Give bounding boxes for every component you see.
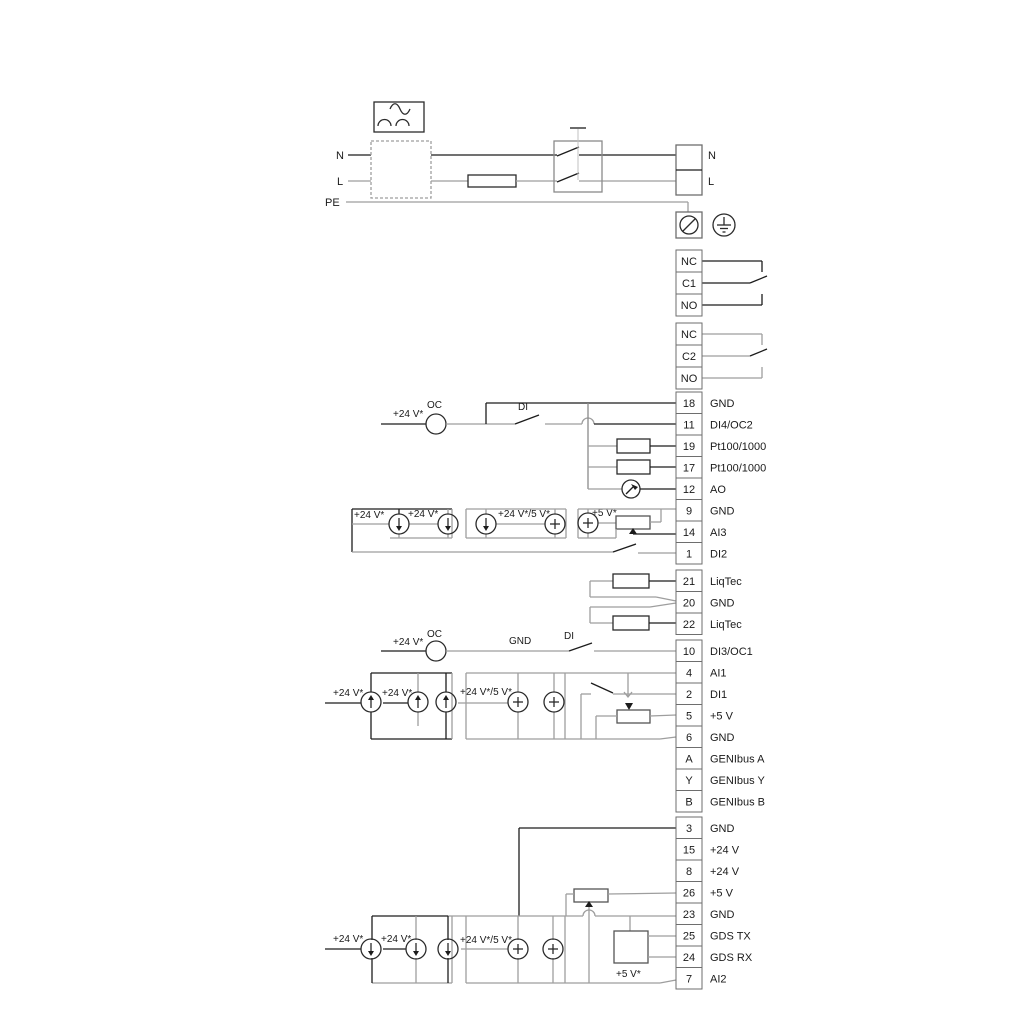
io-mid-terminal-block: 10DI3/OC14AI12DI15+5 V6GNDAGENIbus AYGEN…: [676, 640, 765, 812]
terminal-label: GND: [710, 597, 735, 609]
current-source-icon: [543, 939, 563, 959]
terminal-label: GDS RX: [710, 952, 753, 964]
terminal-number: 1: [686, 548, 692, 560]
oc-label: OC: [427, 629, 442, 640]
current-sink-icon: [361, 939, 381, 959]
plus5-label: +5 V*: [616, 969, 641, 980]
plus24-label: +24 V*: [333, 934, 363, 945]
label-l-right: L: [708, 176, 714, 188]
terminal-label: +5 V: [710, 710, 734, 722]
current-source-up-icon: [436, 692, 456, 712]
terminal-number: 7: [686, 973, 692, 985]
label-n-left: N: [336, 150, 344, 162]
power-section: N L PE N L: [325, 102, 735, 238]
fuse-symbol: [468, 175, 516, 187]
terminal-number: 25: [683, 930, 695, 942]
terminal-label: GND: [710, 398, 735, 410]
rectified-wave-icon: [378, 120, 409, 126]
mains-switch-blade-l: [557, 173, 579, 182]
label-n-right: N: [708, 150, 716, 162]
ai3-option-group: +24 V* +24 V* +24 V*/5 V* +5 V*: [352, 508, 676, 553]
terminal-number: 17: [683, 462, 695, 474]
earth-ground-icon: [713, 214, 735, 236]
current-sink-icon: [438, 939, 458, 959]
plus24or5-label: +24 V*/5 V*: [498, 509, 550, 520]
di4-oc2-circuit: +24 V* OC DI: [381, 400, 676, 434]
terminal-label: DI2: [710, 548, 727, 560]
terminal-label: +24 V: [710, 866, 740, 878]
label-l-left: L: [337, 176, 343, 188]
gnd-label: GND: [509, 636, 531, 647]
terminal-number: B: [685, 796, 692, 808]
relay-2-blade: [750, 349, 767, 356]
terminal-number: 4: [686, 667, 692, 679]
plus24-label: +24 V*: [393, 637, 423, 648]
analog-meter-icon: [622, 480, 640, 498]
terminal-number: C1: [682, 278, 696, 290]
terminal-label: GENIbus Y: [710, 775, 765, 787]
gds-sensor-box: [614, 931, 648, 963]
potentiometer-symbol: [574, 889, 608, 902]
di1-switch-blade: [591, 683, 613, 693]
potentiometer-symbol: [616, 516, 650, 529]
terminal-label: AI3: [710, 527, 727, 539]
terminal-number: 26: [683, 887, 695, 899]
terminal-label: GENIbus A: [710, 753, 765, 765]
terminal-label: +5 V: [710, 887, 734, 899]
terminal-number: 3: [686, 823, 692, 835]
terminal-number: 2: [686, 689, 692, 701]
terminal-number: 8: [686, 866, 692, 878]
wiring-diagram: N L PE N L +24 V* OC DI: [0, 0, 1024, 1024]
relay-1-terminal-block: NCC1NO: [676, 250, 702, 316]
plus24-label: +24 V*: [333, 688, 363, 699]
terminal-label: DI3/OC1: [710, 646, 753, 658]
label-pe: PE: [325, 197, 340, 209]
relay-1-contacts: [702, 261, 767, 305]
current-sink-icon: [476, 514, 496, 534]
terminal-number: 23: [683, 909, 695, 921]
current-sink-icon: [406, 939, 426, 959]
terminal-label: GND: [710, 505, 735, 517]
terminal-label: GND: [710, 823, 735, 835]
terminal-number: 21: [683, 576, 695, 588]
liqtec-circuit: [590, 574, 676, 630]
pt100-sensor-2: [617, 460, 650, 474]
mains-switch-blade-n: [557, 147, 579, 156]
di-label: DI: [564, 631, 574, 642]
terminal-label: LiqTec: [710, 619, 742, 631]
terminal-label: Pt100/1000: [710, 441, 766, 453]
terminal-label: AI1: [710, 667, 727, 679]
ai2-gds-group: +5 V* +24 V* +24 V* +24 V*/5 V*: [325, 828, 676, 983]
liqtec-terminal-block: 21LiqTec20GND22LiqTec: [676, 570, 742, 635]
terminal-number: 10: [683, 646, 695, 658]
terminal-label: GENIbus B: [710, 796, 765, 808]
terminal-number: C2: [682, 351, 696, 363]
liqtec-sensor-1: [613, 574, 649, 588]
terminal-number: NO: [681, 300, 698, 312]
ai1-option-group: +24 V* +24 V* +24 V*/5 V*: [325, 673, 676, 739]
terminal-number: 9: [686, 505, 692, 517]
pt100-sensor-1: [617, 439, 650, 453]
pt100-ao-circuit: [588, 403, 676, 498]
terminal-number: 15: [683, 844, 695, 856]
current-source-icon: [544, 692, 564, 712]
terminal-label: DI1: [710, 689, 727, 701]
terminal-label: +24 V: [710, 844, 740, 856]
plus24-label: +24 V*: [381, 934, 411, 945]
relay-2-contacts: [702, 334, 767, 378]
plus24or5-label: +24 V*/5 V*: [460, 687, 512, 698]
terminal-number: 18: [683, 398, 695, 410]
terminal-number: NO: [681, 373, 698, 385]
terminal-label: AI2: [710, 973, 727, 985]
open-collector-icon: [426, 641, 446, 661]
terminal-number: Y: [685, 775, 693, 787]
terminal-number: 24: [683, 952, 695, 964]
terminal-number: 19: [683, 441, 695, 453]
terminal-number: 22: [683, 619, 695, 631]
terminal-label: Pt100/1000: [710, 462, 766, 474]
terminal-number: NC: [681, 329, 697, 341]
oc-label: OC: [427, 400, 442, 411]
di3-switch-blade: [569, 643, 592, 651]
current-source-icon: [508, 692, 528, 712]
diagram-canvas: N L PE N L +24 V* OC DI: [0, 0, 1024, 1024]
plus24-label: +24 V*: [408, 509, 438, 520]
relay-1-blade: [750, 276, 767, 283]
current-sink-icon: [389, 514, 409, 534]
current-source-icon: [545, 514, 565, 534]
terminal-label: GDS TX: [710, 930, 751, 942]
terminal-number: A: [685, 753, 693, 765]
wiper-arrow: [625, 703, 633, 710]
terminal-label: GND: [710, 909, 735, 921]
io-top-terminal-block: 18GND11DI4/OC219Pt100/100017Pt100/100012…: [676, 392, 766, 564]
terminal-label: DI4/OC2: [710, 419, 753, 431]
terminal-label: GND: [710, 732, 735, 744]
terminal-number: NC: [681, 256, 697, 268]
current-source-up-icon: [408, 692, 428, 712]
sine-wave-icon: [390, 104, 410, 115]
current-source-icon: [508, 939, 528, 959]
plus24-label: +24 V*: [354, 510, 384, 521]
plus24-label: +24 V*: [382, 688, 412, 699]
terminal-number: 6: [686, 732, 692, 744]
di-switch-blade: [515, 415, 539, 424]
liqtec-sensor-2: [613, 616, 649, 630]
di3-oc1-circuit: +24 V* OC GND DI: [381, 629, 676, 661]
plus24-label: +24 V*: [393, 409, 423, 420]
current-source-icon: [578, 513, 598, 533]
di2-switch-blade: [613, 544, 636, 552]
potentiometer-symbol: [617, 710, 650, 723]
current-sink-icon: [438, 514, 458, 534]
relay-2-terminal-block: NCC2NO: [676, 323, 702, 389]
terminal-number: 11: [683, 419, 694, 431]
terminal-label: LiqTec: [710, 576, 742, 588]
terminal-number: 12: [683, 484, 695, 496]
terminal-number: 20: [683, 597, 695, 609]
terminal-number: 14: [683, 527, 695, 539]
terminal-label: AO: [710, 484, 726, 496]
io-bottom-terminal-block: 3GND15+24 V8+24 V26+5 V23GND25GDS TX24GD…: [676, 817, 753, 989]
filter-box: [371, 141, 431, 198]
terminal-number: 5: [686, 710, 692, 722]
open-collector-icon: [426, 414, 446, 434]
current-source-up-icon: [361, 692, 381, 712]
plus24or5-label: +24 V*/5 V*: [460, 935, 512, 946]
